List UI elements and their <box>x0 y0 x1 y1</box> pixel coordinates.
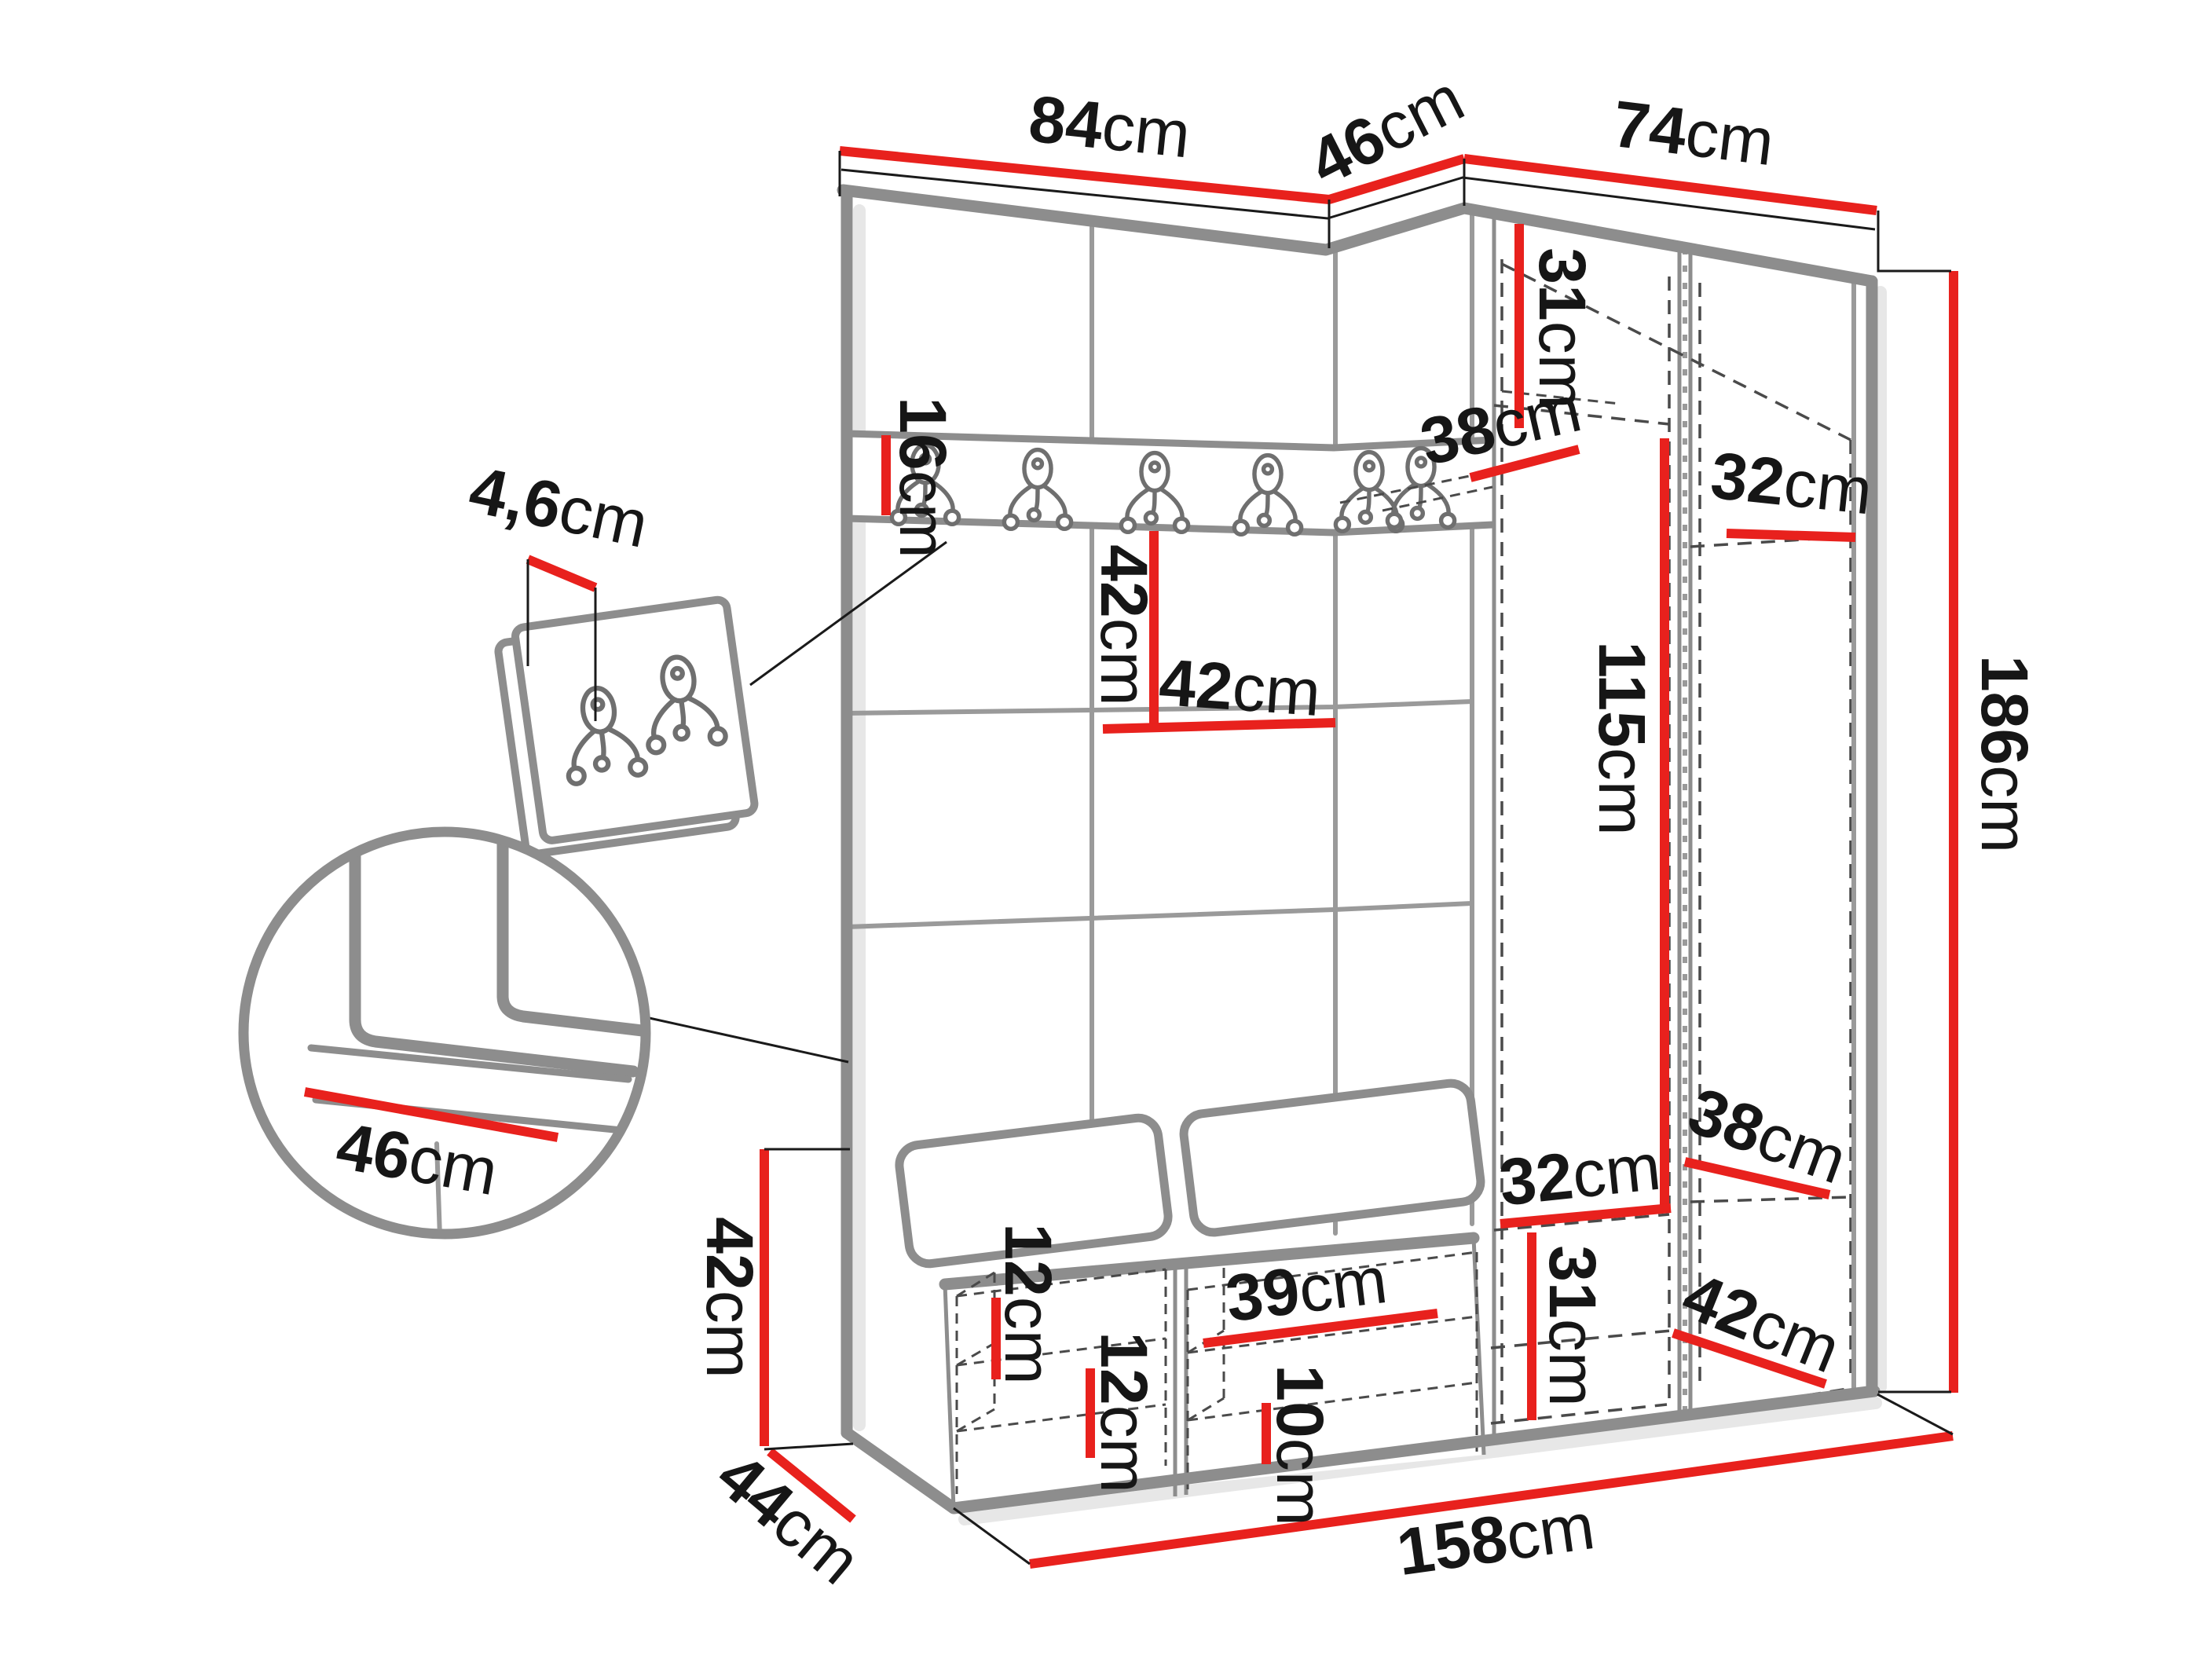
dim-label-12-b: 12cm <box>1087 1331 1161 1492</box>
dim-line-32-top <box>1727 533 1855 537</box>
hook-panel-front <box>514 599 755 841</box>
hallway-furniture-dimension-diagram: 84cm 46cm 74cm 186cm 31cm 38cm 32cm 16cm… <box>0 0 2212 1659</box>
seat-cushion-right <box>1181 1081 1483 1235</box>
unit-bottom-left-corner <box>847 1433 954 1508</box>
extension-step-top-right <box>1878 211 1951 271</box>
dim-label-32-mid: 32cm <box>1496 1130 1664 1220</box>
unit-top-edge <box>843 190 1872 281</box>
left-panel-wall <box>841 170 1875 1233</box>
dim-label-10: 10cm <box>1263 1364 1337 1525</box>
dim-label-74: 74cm <box>1609 86 1778 179</box>
dim-line-4-6 <box>528 559 595 588</box>
dim-label-4-6: 4,6cm <box>463 452 654 562</box>
dim-label-38-top: 38cm <box>1414 371 1588 479</box>
dim-label-42-bench: 42cm <box>693 1217 767 1378</box>
hook-panel <box>496 599 757 855</box>
dim-label-42-horiz: 42cm <box>1157 645 1323 730</box>
dim-label-31-bottom: 31cm <box>1536 1245 1610 1406</box>
extension-tick <box>1877 1394 1953 1434</box>
dim-label-84: 84cm <box>1026 82 1194 172</box>
seat-detail-leader <box>646 1017 848 1062</box>
dim-label-32-top: 32cm <box>1708 438 1876 529</box>
extension-tick <box>764 1444 853 1449</box>
dim-label-42-vert: 42cm <box>1087 544 1161 705</box>
dim-label-12-a: 12cm <box>991 1223 1065 1384</box>
dim-label-186: 186cm <box>1968 655 2042 853</box>
dim-label-115: 115cm <box>1585 641 1659 836</box>
panel-seam-row3 <box>847 903 1472 927</box>
hook-panel-detail <box>496 559 757 855</box>
dim-label-16: 16cm <box>886 397 960 558</box>
shoe-bench <box>897 1081 1484 1508</box>
dim-label-158: 158cm <box>1393 1489 1599 1589</box>
